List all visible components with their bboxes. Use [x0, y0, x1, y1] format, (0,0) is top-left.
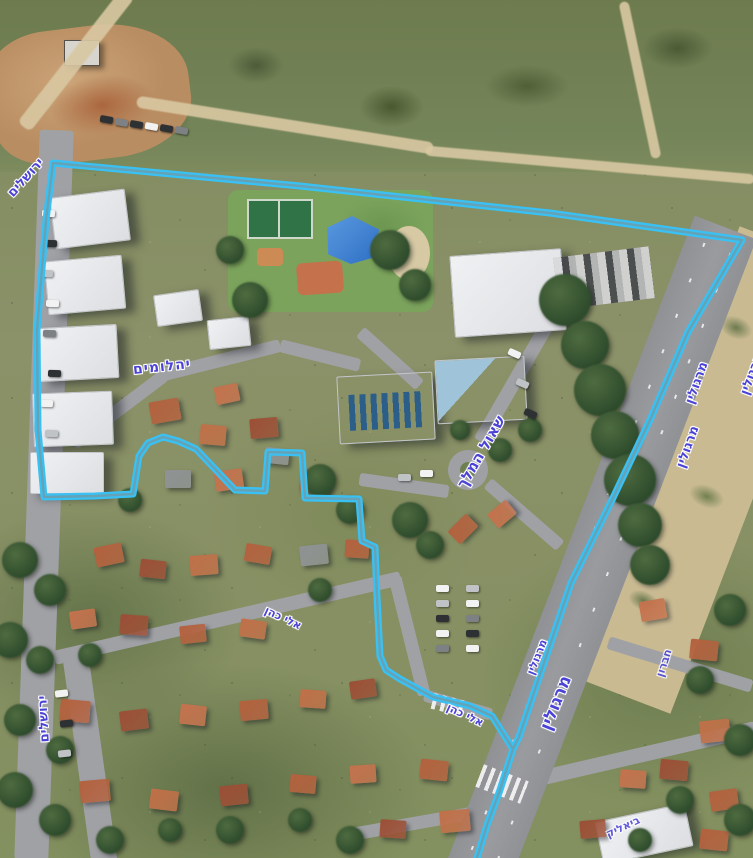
aerial-map-view[interactable]: ירושלים יהלומים שאול המלך מרגולין מרגולי… — [0, 0, 753, 858]
street-label-yerushalayim-left: ירושלים — [35, 695, 52, 742]
boundary-overlay — [0, 0, 753, 858]
boundary-polygon — [37, 163, 742, 749]
boundary-inner-gap — [37, 163, 742, 858]
